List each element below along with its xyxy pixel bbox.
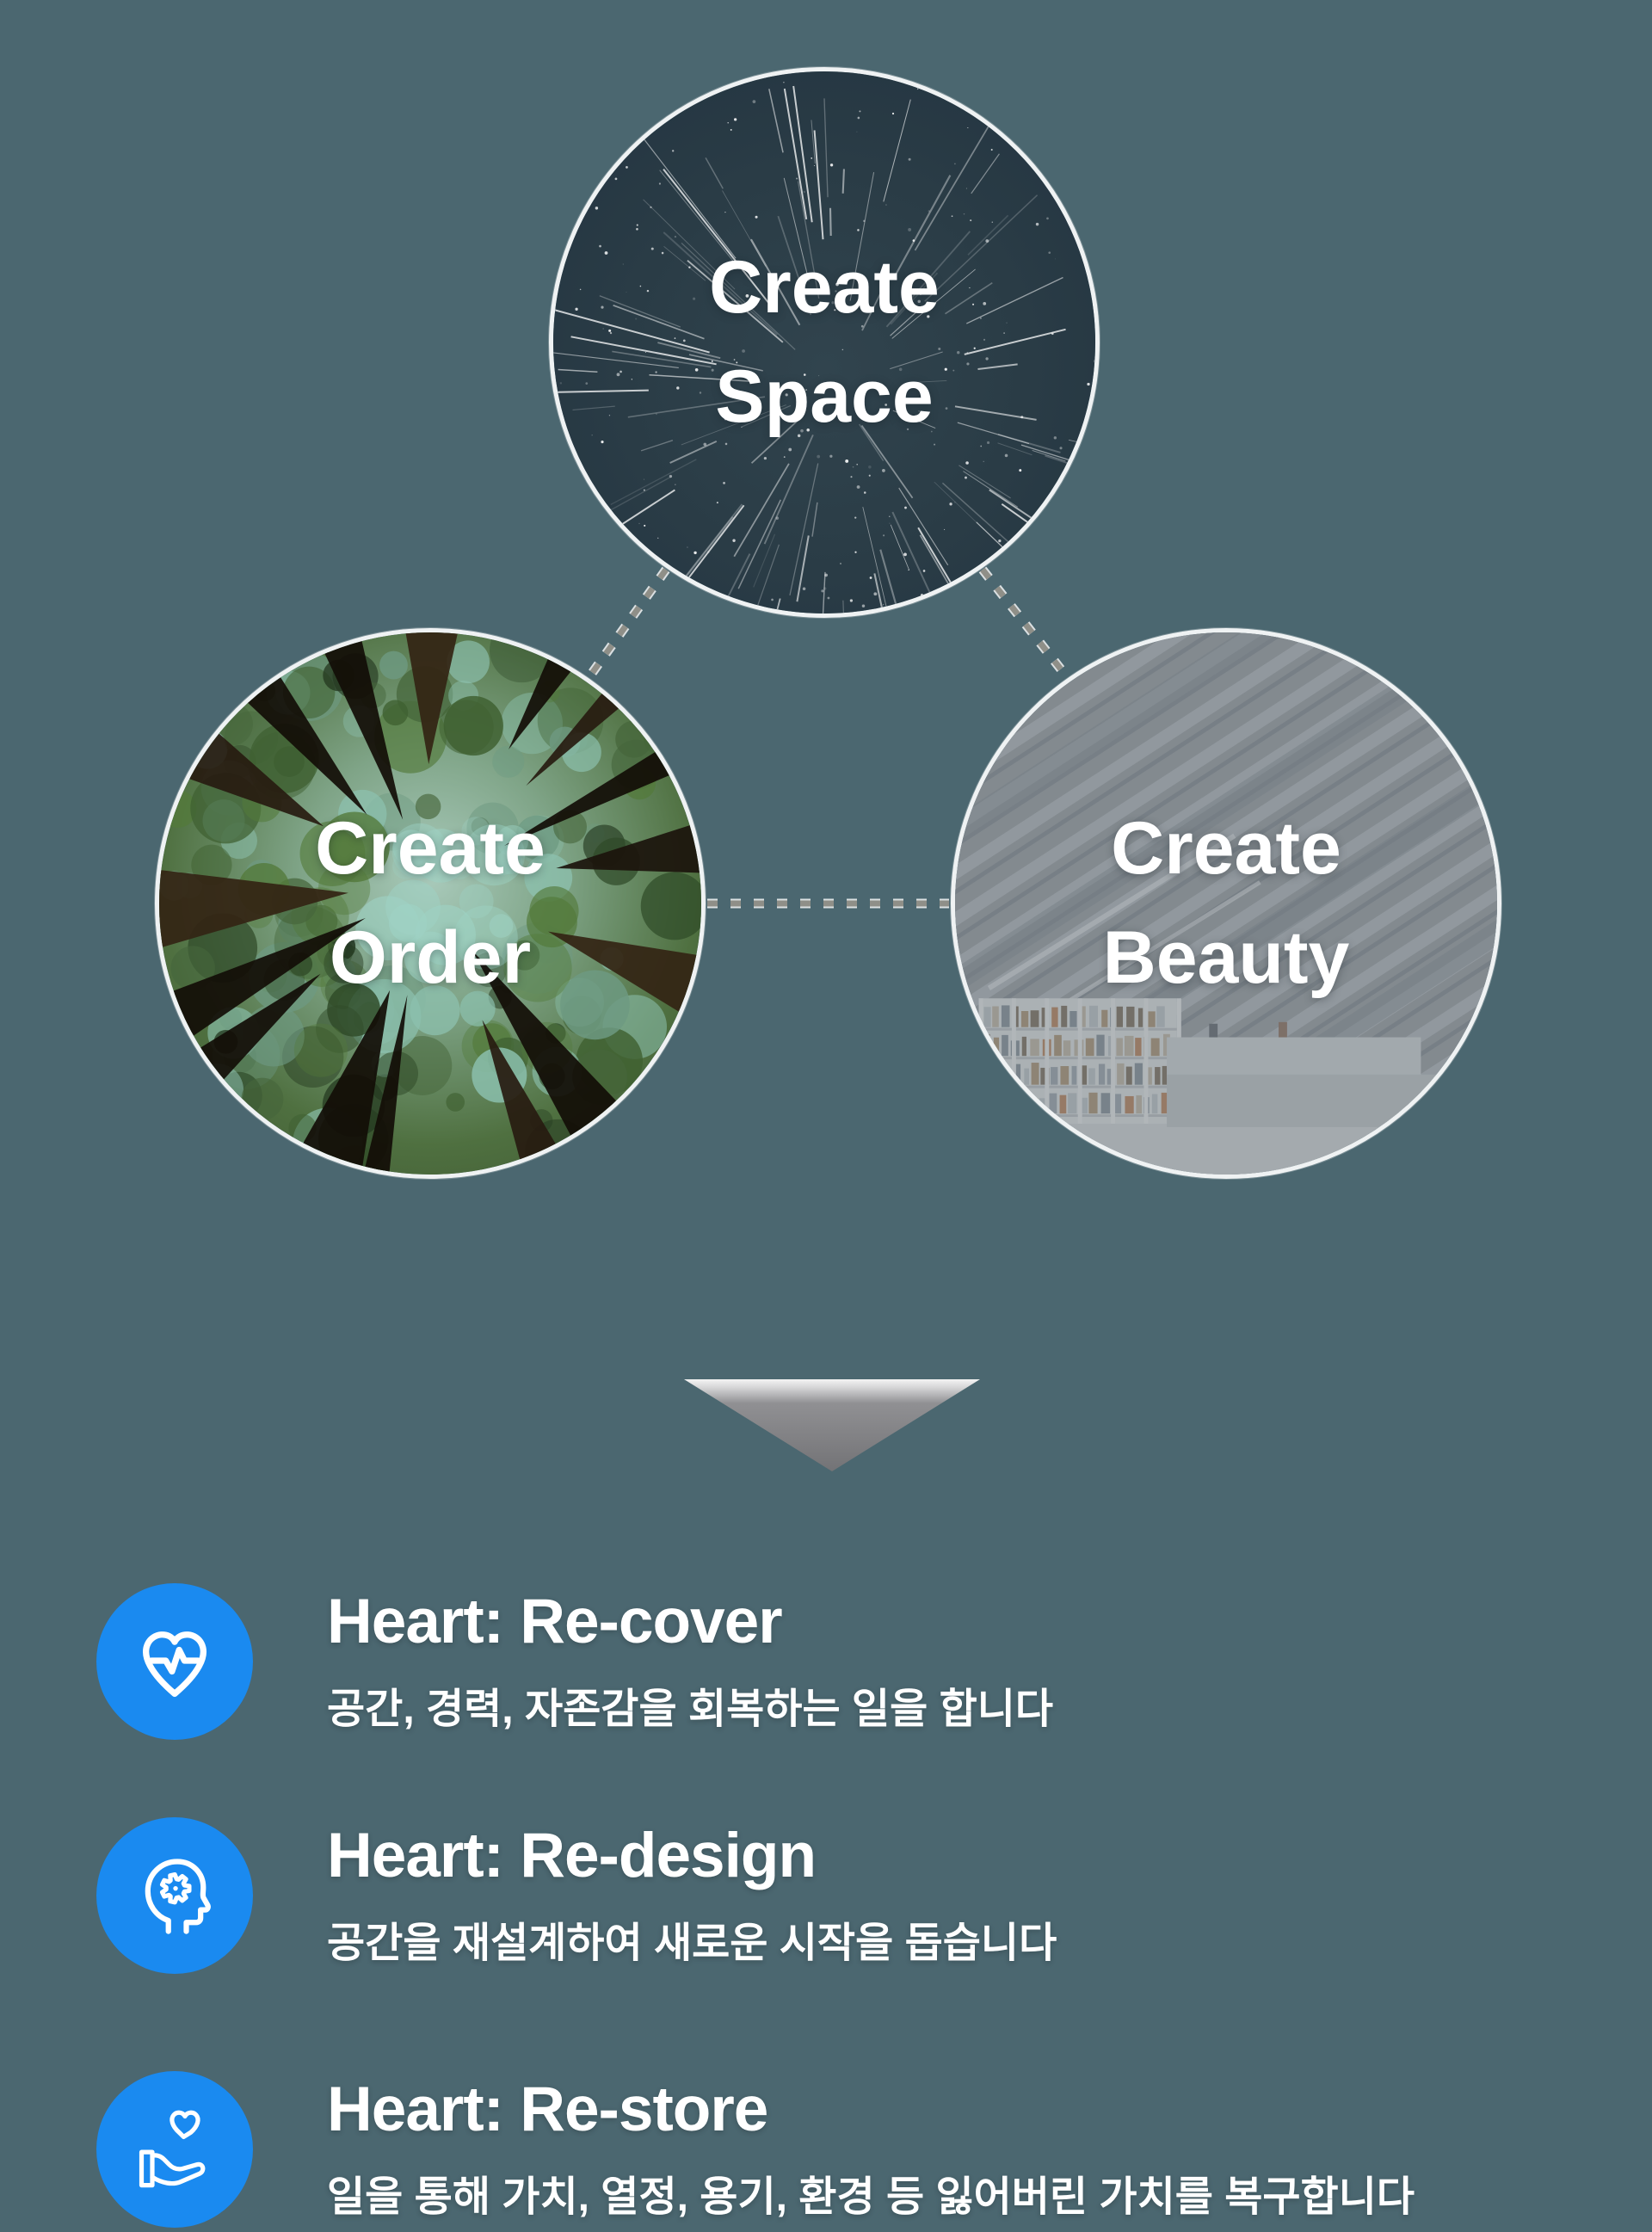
head-gear-icon	[96, 1817, 253, 1974]
feature-title: Heart: Re-store	[327, 2076, 1611, 2143]
hand-heart-icon	[96, 2071, 253, 2228]
feature-description: 공간, 경력, 자존감을 회복하는 일을 합니다	[327, 1686, 1611, 1733]
label-line: Order	[330, 903, 531, 1013]
circle-create-space: Create Space	[549, 67, 1100, 618]
label-line: Create	[709, 233, 940, 342]
page: Create Space Create Order Create Beauty …	[0, 0, 1652, 2232]
label-line: Beauty	[1103, 903, 1350, 1013]
circle-create-beauty-label: Create Beauty	[955, 632, 1497, 1175]
label-line: Create	[1111, 794, 1341, 903]
feature-redesign: Heart: Re-design 공간을 재설계하여 새로운 시작을 돕습니다	[96, 1817, 1611, 1981]
feature-text: Heart: Re-store 일을 통해 가치, 열정, 용기, 환경 등 잃…	[327, 2071, 1611, 2222]
down-arrow-triangle	[684, 1379, 980, 1471]
heart-pulse-icon	[96, 1583, 253, 1740]
feature-description: 공간을 재설계하여 새로운 시작을 돕습니다	[327, 1920, 1611, 1967]
circle-create-order: Create Order	[155, 628, 706, 1179]
feature-text: Heart: Re-design 공간을 재설계하여 새로운 시작을 돕습니다	[327, 1817, 1611, 1968]
feature-recover: Heart: Re-cover 공간, 경력, 자존감을 회복하는 일을 합니다	[96, 1583, 1611, 1747]
circle-create-order-label: Create Order	[159, 632, 701, 1175]
feature-title: Heart: Re-design	[327, 1822, 1611, 1889]
circle-create-space-label: Create Space	[553, 71, 1095, 613]
circle-create-beauty: Create Beauty	[951, 628, 1501, 1179]
feature-description: 일을 통해 가치, 열정, 용기, 환경 등 잃어버린 가치를 복구합니다	[327, 2173, 1611, 2221]
feature-restore: Heart: Re-store 일을 통해 가치, 열정, 용기, 환경 등 잃…	[96, 2071, 1611, 2232]
feature-text: Heart: Re-cover 공간, 경력, 자존감을 회복하는 일을 합니다	[327, 1583, 1611, 1734]
label-line: Space	[715, 342, 933, 452]
label-line: Create	[315, 794, 546, 903]
feature-title: Heart: Re-cover	[327, 1588, 1611, 1655]
